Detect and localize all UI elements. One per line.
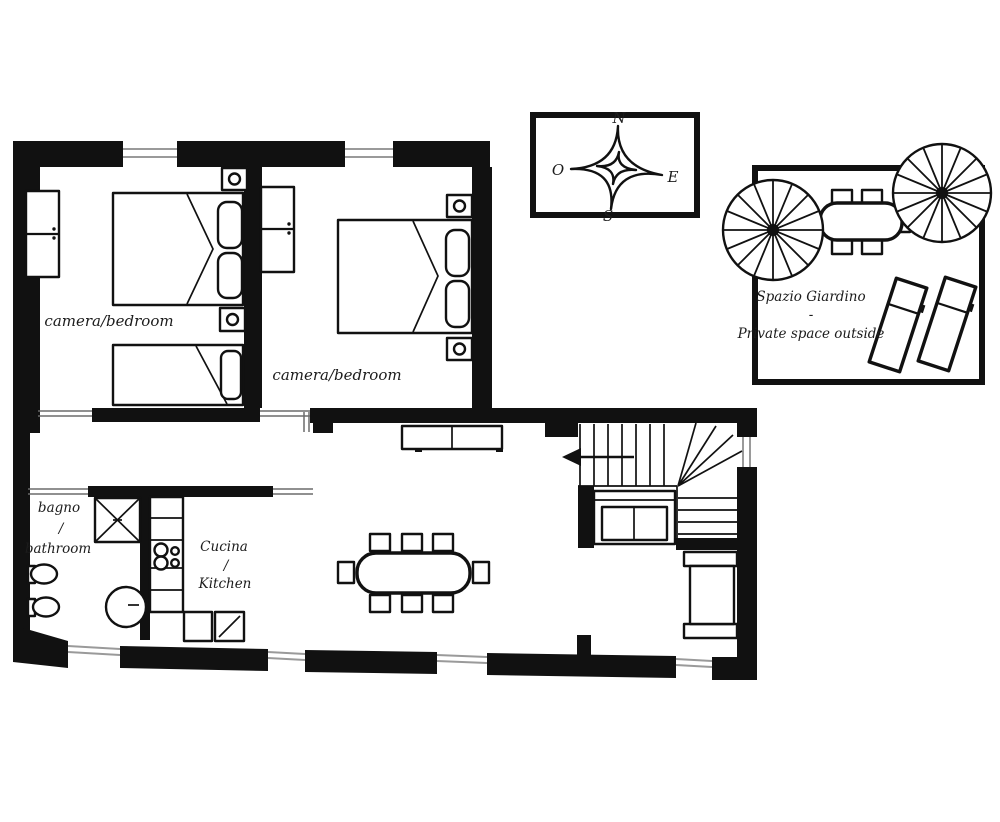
door-corridor-living (304, 412, 309, 432)
garden-table (820, 203, 902, 240)
bathroom-label-line3: bathroom (25, 541, 91, 557)
bidet (28, 598, 59, 617)
garden-label-line2: - (809, 307, 814, 323)
nightstand-lamp (220, 308, 245, 331)
bathroom-label-line1: bagno (38, 500, 80, 516)
shower (95, 498, 140, 542)
wardrobe (26, 191, 59, 277)
compass-east: E (667, 168, 679, 186)
bedroom-2: camera/bedroom (261, 187, 472, 384)
wall-top-right (393, 141, 490, 167)
wall-corridor-bottom-b (88, 486, 273, 497)
wall-right-top (737, 408, 757, 437)
entry-direction-arrow (562, 448, 634, 466)
wall-bedroom2-right (472, 167, 492, 412)
wall-under-stair (676, 538, 740, 550)
sideboard (402, 426, 503, 452)
wall-bottom-stub (577, 635, 591, 657)
wall-right-bottom (737, 467, 757, 662)
wall-bottom-left-corner (13, 626, 68, 668)
double-bed (113, 193, 243, 305)
floor-plan-drawing: camera/bedroom camera/bedroom (0, 0, 1000, 822)
kitchen-label-line2: / (222, 558, 230, 574)
dining-table (338, 534, 489, 612)
stair-treads-lower (677, 486, 737, 538)
wall-bottom-c (305, 650, 437, 674)
window-living-1 (437, 655, 487, 663)
garden-label-line3: Private space outside (737, 326, 885, 342)
single-bed (113, 345, 243, 405)
nightstand-lamp (222, 168, 247, 190)
nightstand-lamp (447, 338, 472, 360)
floor-plan-page: camera/bedroom camera/bedroom (0, 0, 1000, 822)
window-stair (743, 437, 750, 467)
chair (473, 562, 489, 583)
door-bathroom (28, 489, 88, 494)
bedroom1-label: camera/bedroom (44, 312, 173, 330)
window-kitchen (268, 652, 305, 660)
kitchen-base-units (184, 612, 244, 641)
chair (433, 595, 453, 612)
garden-label-line1: Spazio Giardino (756, 289, 865, 305)
bedroom2-label: camera/bedroom (272, 366, 401, 384)
nightstand-lamp (447, 195, 472, 217)
wall-stair-side (578, 486, 594, 548)
wall-corridor-bottom-a (13, 486, 28, 497)
wardrobe (261, 187, 294, 272)
garden: Spazio Giardino - Private space outside (723, 144, 991, 382)
chair (402, 595, 422, 612)
compass-south: S (603, 207, 613, 225)
chair (370, 534, 390, 551)
sofa (684, 552, 737, 638)
bathroom: bagno / bathroom (25, 498, 146, 627)
garden-chair (832, 240, 852, 254)
compass-west: O (552, 161, 564, 179)
window-bedroom1 (123, 149, 177, 157)
wall-top-mid (177, 141, 345, 167)
bedroom-1: camera/bedroom (26, 168, 247, 405)
chair (402, 534, 422, 551)
garden-chair (862, 240, 882, 254)
door-bedroom1 (38, 411, 92, 416)
stair-treads-upper (578, 424, 677, 486)
sink (106, 587, 146, 627)
wall-living-top-corner (313, 422, 333, 433)
door-kitchen (273, 489, 313, 494)
chair (433, 534, 453, 551)
door-bedroom2 (260, 411, 310, 416)
wall-bedroom-divider (244, 167, 262, 408)
doors (28, 411, 313, 494)
wall-corridor-top-b (92, 408, 260, 422)
wall-corridor-top-a (13, 408, 38, 422)
table-top (357, 553, 470, 593)
chair (370, 595, 390, 612)
wall-stair-pier (545, 422, 578, 437)
under-stair-cabinet (594, 491, 675, 544)
kitchen: Cucina / Kitchen (150, 497, 251, 641)
chair (338, 562, 354, 583)
double-bed (338, 220, 472, 333)
kitchen-label-line3: Kitchen (198, 576, 252, 592)
kitchen-label-line1: Cucina (200, 539, 248, 555)
compass-north: N (611, 109, 626, 127)
wall-bottom-b (120, 646, 268, 671)
stair-winder (678, 423, 742, 486)
parasol-umbrella (893, 144, 991, 242)
parasol-umbrella (723, 180, 823, 280)
bathroom-label-line2: / (57, 521, 65, 537)
wall-living-top (310, 408, 757, 423)
compass-rose: N O E S (533, 109, 697, 225)
window-bathroom (68, 646, 120, 655)
window-bedroom2 (345, 149, 393, 157)
window-living-2 (676, 659, 712, 667)
toilet (28, 565, 57, 584)
